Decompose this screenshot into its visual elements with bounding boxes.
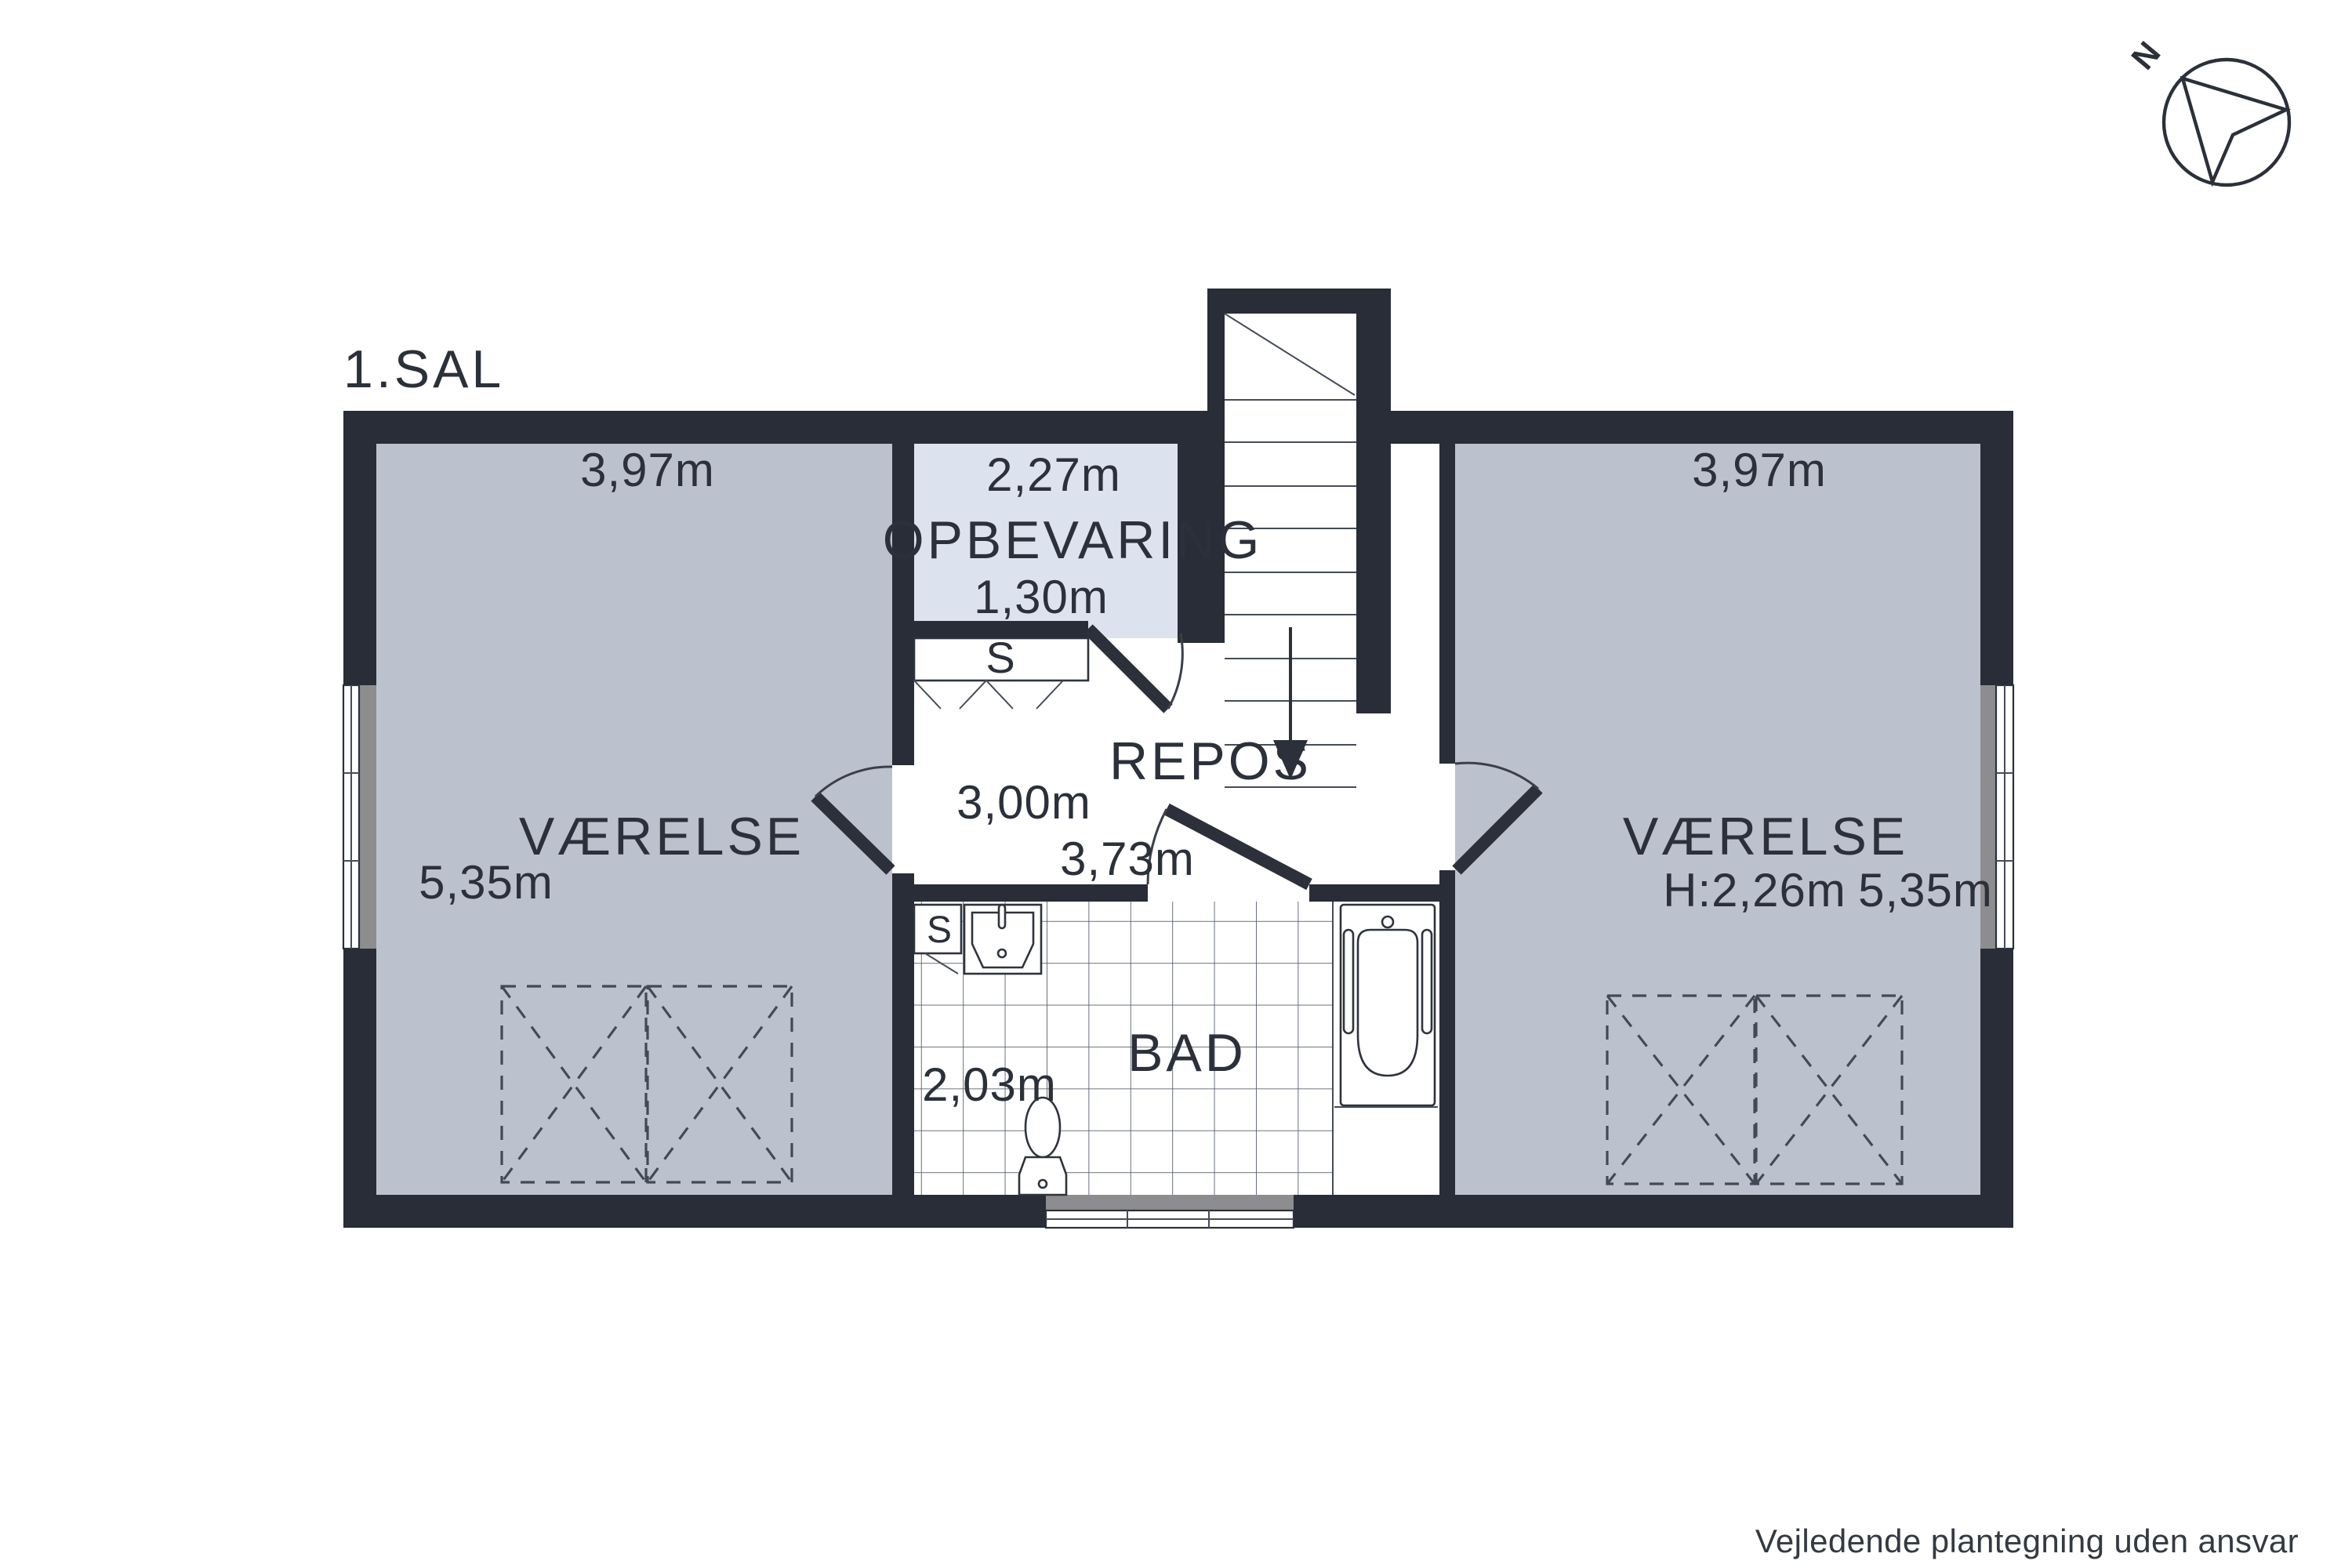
label-bad-closet: S <box>927 909 952 951</box>
label-vaerelse-right: VÆRELSE <box>1623 807 1908 866</box>
compass: N <box>2124 34 2289 185</box>
dim-vaerelse-right-height: H:2,26m <box>1663 864 1846 916</box>
label-repos: REPOS <box>1109 731 1312 791</box>
dim-repos-width: 3,00m <box>956 776 1091 829</box>
compass-north-label: N <box>2124 34 2168 76</box>
dim-repos-length: 3,73m <box>1060 833 1195 885</box>
bathtub <box>1333 902 1438 1195</box>
stair-shaft-walls <box>1178 289 1391 713</box>
dim-bad-width: 2,03m <box>922 1058 1057 1111</box>
dim-vaerelse-left-length: 5,35m <box>419 856 554 909</box>
label-hall-closet: S <box>985 633 1014 682</box>
window-left <box>343 685 376 949</box>
dim-vaerelse-left-width: 3,97m <box>580 444 715 496</box>
label-opbevaring: OPBEVARING <box>883 510 1263 570</box>
dim-vaerelse-right-width: 3,97m <box>1692 444 1827 496</box>
dim-opbevaring-depth: 1,30m <box>974 571 1109 623</box>
label-vaerelse-left: VÆRELSE <box>519 807 804 866</box>
page-title: 1.SAL <box>343 339 504 399</box>
door-opbevaring <box>1088 629 1182 709</box>
disclaimer-text: Vejledende plantegning uden ansvar <box>1755 1523 2299 1559</box>
floor-plan-page: N 1.SAL VÆRELSE 3,97m 5,35m OPBEVARING 2… <box>0 0 2352 1568</box>
label-bad: BAD <box>1127 1023 1247 1083</box>
floor-plan-canvas: N 1.SAL VÆRELSE 3,97m 5,35m OPBEVARING 2… <box>0 0 2352 1568</box>
window-bottom <box>1046 1195 1294 1228</box>
dim-opbevaring-width: 2,27m <box>986 448 1121 501</box>
dim-vaerelse-right-length: 5,35m <box>1858 864 1993 916</box>
sink <box>964 905 1041 974</box>
